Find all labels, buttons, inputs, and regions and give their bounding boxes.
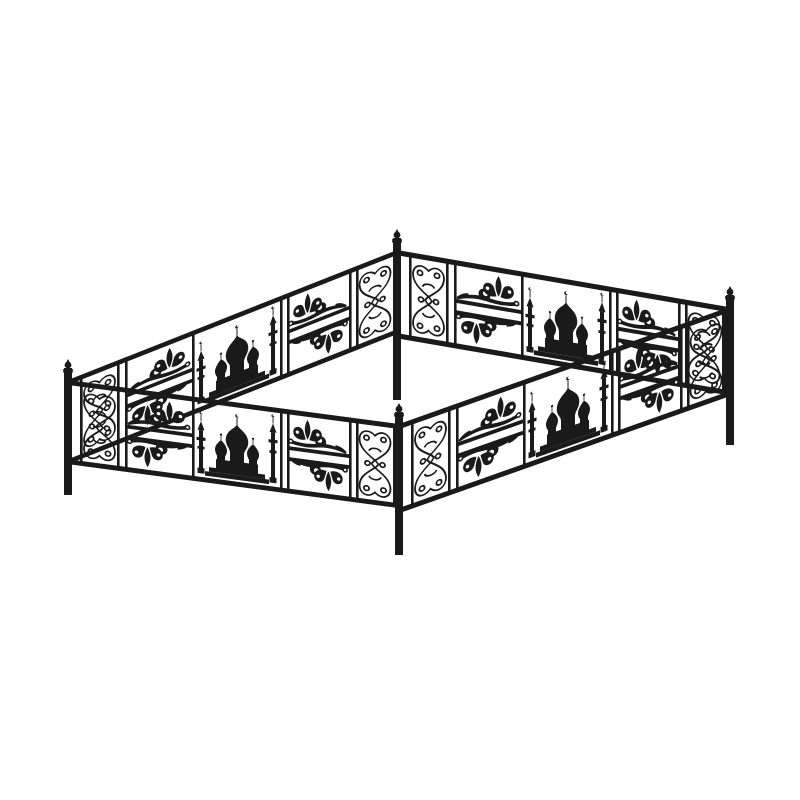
corner-post-right: [725, 286, 735, 445]
product-image-canvas: [0, 0, 800, 800]
corner-post-near: [394, 403, 404, 555]
corner-post-left: [63, 359, 73, 495]
corner-post-far: [392, 229, 402, 400]
fence-product-image: [0, 0, 800, 800]
